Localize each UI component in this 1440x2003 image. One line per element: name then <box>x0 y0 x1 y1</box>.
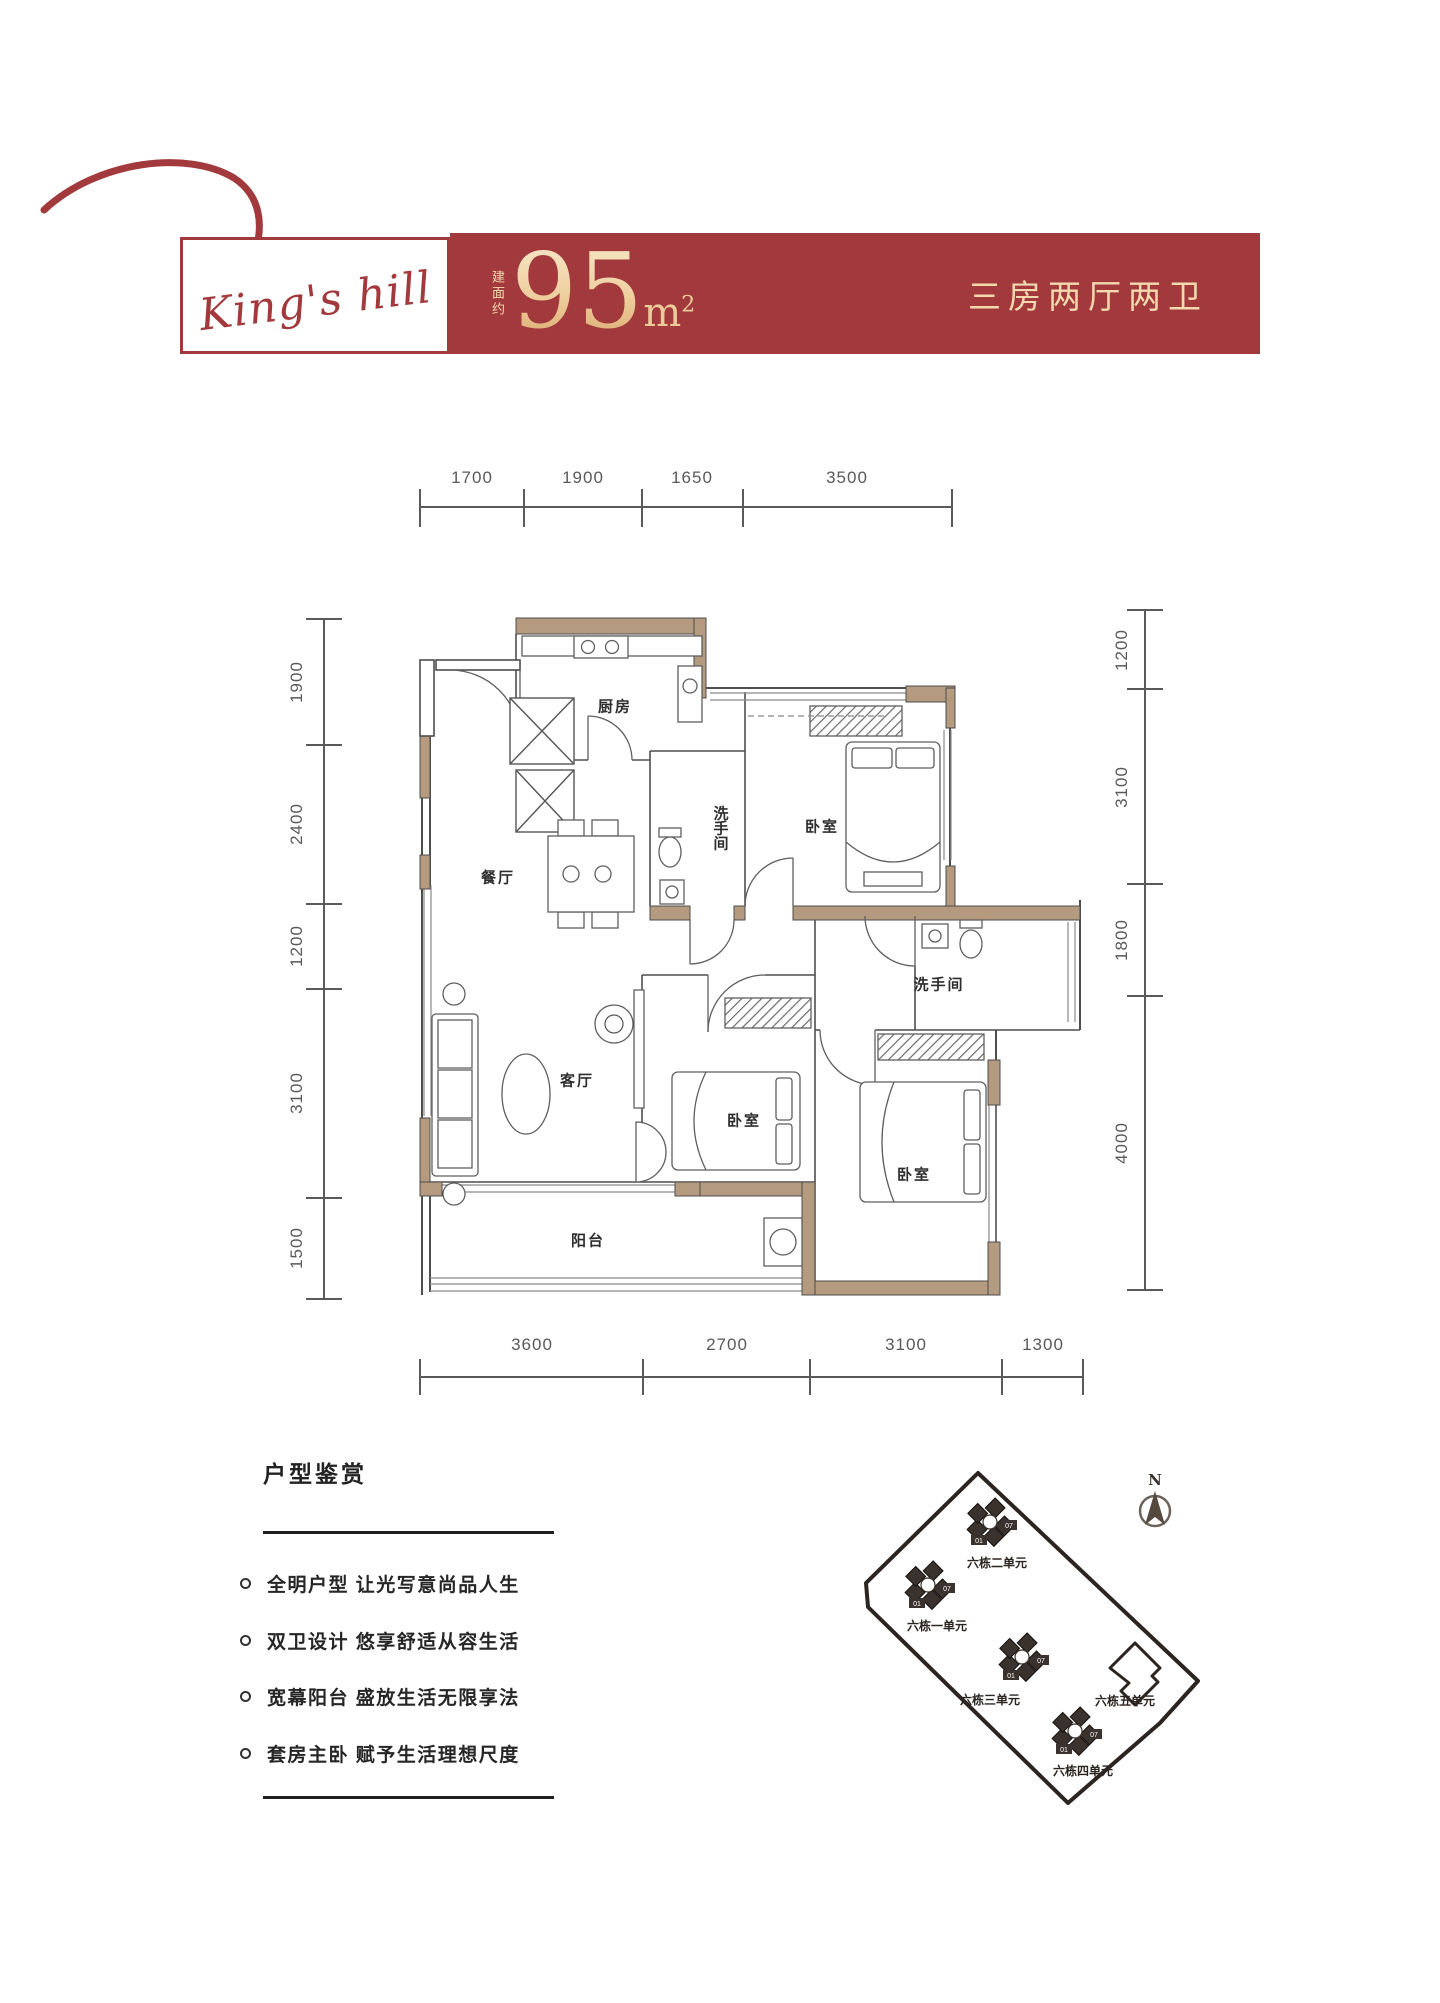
site-plan-drawing: N 0107010701070107 六栋二单元六栋一单元六栋三单元六栋四单元六… <box>840 1425 1240 1825</box>
north-arrow-icon: N <box>1140 1471 1170 1526</box>
svg-text:07: 07 <box>1090 1732 1098 1739</box>
building-label: 六栋四单元 <box>1053 1763 1113 1778</box>
dim-left-2: 2400 <box>287 803 307 845</box>
dim-left-1: 1900 <box>287 661 307 703</box>
feature-item-3: 宽幕阳台 盛放生活无限享法 <box>240 1683 520 1710</box>
dim-top-2: 1900 <box>562 468 604 488</box>
area-prefix-label: 建面约 <box>490 270 505 318</box>
elevator-shafts <box>510 698 574 832</box>
building-label: 六栋三单元 <box>960 1692 1020 1707</box>
bullet-icon <box>240 1691 251 1702</box>
features-rule-bottom <box>263 1796 554 1799</box>
room-label-kitchen: 厨房 <box>598 696 632 717</box>
dim-top-1: 1700 <box>451 468 493 488</box>
balcony-fixtures <box>764 1218 802 1266</box>
features-rule-top <box>263 1531 554 1534</box>
dim-top-4: 3500 <box>826 468 868 488</box>
dim-right-4: 4000 <box>1112 1122 1132 1164</box>
bullet-icon <box>240 1578 251 1589</box>
header-banner: 建面约 95 m2 三房两厅两卫 <box>450 233 1260 354</box>
dim-left-5: 1500 <box>287 1227 307 1269</box>
room-label-balcony: 阳台 <box>571 1230 605 1251</box>
poster-page: { "header": { "logo_text": "King's hill"… <box>0 0 1440 2003</box>
brand-logo-box: King's hill <box>180 237 450 354</box>
dim-bottom-3: 3100 <box>885 1335 927 1355</box>
bullet-icon <box>240 1748 251 1759</box>
building-label: 六栋五单元 <box>1095 1693 1155 1708</box>
svg-text:N: N <box>1148 1471 1162 1489</box>
room-label-bedroom3: 卧室 <box>897 1164 931 1185</box>
room-label-bedroom2: 卧室 <box>727 1110 761 1131</box>
bedroom2-furniture <box>672 998 811 1170</box>
building-label: 六栋二单元 <box>967 1555 1027 1570</box>
floor-plan-drawing <box>270 430 1170 1410</box>
svg-text:01: 01 <box>1007 1673 1015 1680</box>
svg-text:01: 01 <box>975 1538 983 1545</box>
svg-text:01: 01 <box>1060 1747 1068 1754</box>
dimension-lines <box>306 489 1163 1395</box>
room-label-bedroom1: 卧室 <box>805 816 839 837</box>
bathroom2-fixtures <box>922 920 982 958</box>
dim-left-4: 3100 <box>287 1072 307 1114</box>
living-room-furniture <box>432 983 666 1205</box>
bullet-icon <box>240 1635 251 1646</box>
layout-type-label: 三房两厅两卫 <box>968 270 1208 318</box>
bathroom1-fixtures <box>659 828 684 904</box>
svg-text:07: 07 <box>1005 1523 1013 1530</box>
dim-bottom-4: 1300 <box>1022 1335 1064 1355</box>
feature-item-4: 套房主卧 赋予生活理想尺度 <box>240 1740 520 1767</box>
room-label-living: 客厅 <box>560 1070 594 1091</box>
feature-item-2: 双卫设计 悠享舒适从容生活 <box>240 1627 520 1654</box>
area-unit: m2 <box>643 290 695 336</box>
svg-text:07: 07 <box>1037 1658 1045 1665</box>
area-value: 95 <box>511 241 643 341</box>
room-label-bath2: 洗手间 <box>913 974 964 995</box>
svg-text:07: 07 <box>943 1586 951 1593</box>
svg-text:01: 01 <box>913 1601 921 1608</box>
site-plan: N 0107010701070107 六栋二单元六栋一单元六栋三单元六栋四单元六… <box>840 1425 1240 1825</box>
dim-top-3: 1650 <box>671 468 713 488</box>
entry-structure <box>420 660 520 736</box>
dim-bottom-1: 3600 <box>511 1335 553 1355</box>
dim-right-2: 3100 <box>1112 766 1132 808</box>
dim-bottom-2: 2700 <box>706 1335 748 1355</box>
floor-plan: 1700 1900 1650 3500 1900 2400 1200 3100 … <box>270 430 1170 1410</box>
dim-right-1: 1200 <box>1112 629 1132 671</box>
room-label-dining: 餐厅 <box>481 867 515 888</box>
feature-item-1: 全明户型 让光写意尚品人生 <box>240 1570 520 1597</box>
features-title: 户型鉴赏 <box>263 1455 367 1489</box>
building-label: 六栋一单元 <box>907 1618 967 1633</box>
brand-logo-text: King's hill <box>197 262 435 341</box>
dim-right-3: 1800 <box>1112 919 1132 961</box>
dining-table <box>548 820 634 928</box>
dim-left-3: 1200 <box>287 925 307 967</box>
bedroom1-furniture <box>748 706 940 892</box>
room-label-bath1: 洗手间 <box>710 806 731 851</box>
